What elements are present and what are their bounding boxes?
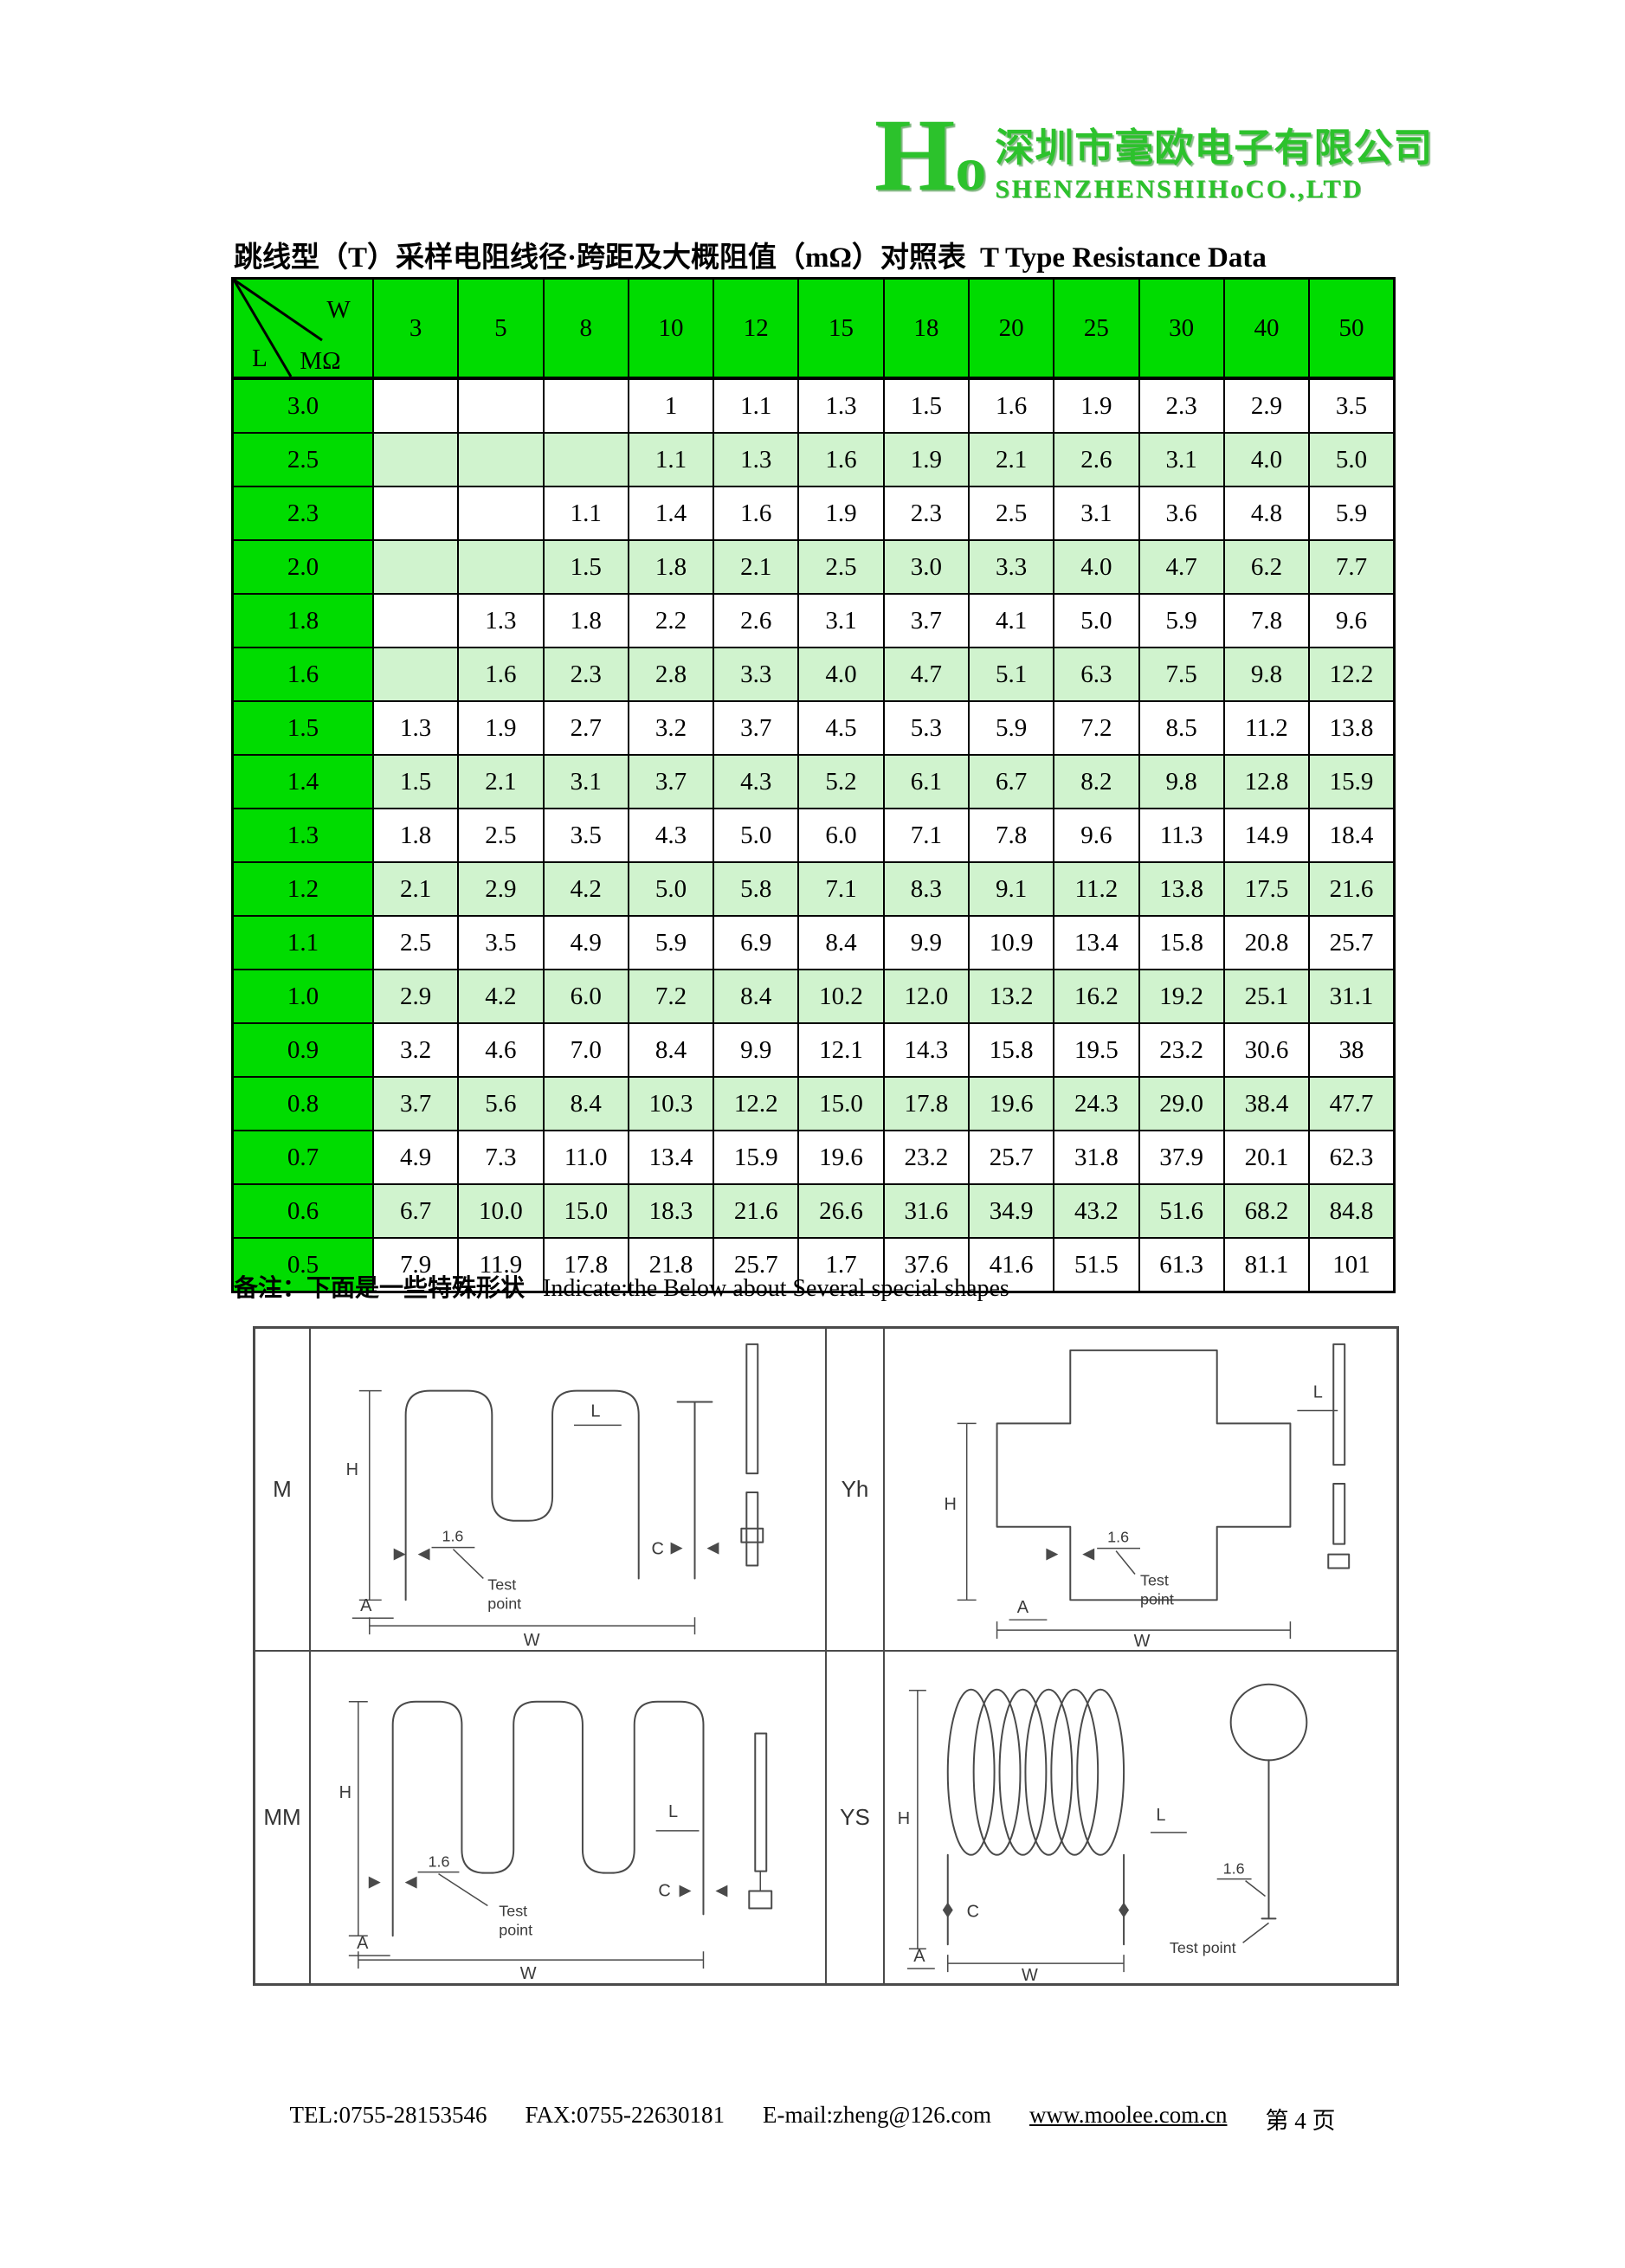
logo-text: 深圳市毫欧电子有限公司 SHENZHENSHIHoCO.,LTD bbox=[995, 116, 1433, 204]
dim-label-l: L bbox=[1156, 1806, 1165, 1825]
cell-1.1-40: 20.8 bbox=[1224, 916, 1309, 970]
footer-website-link[interactable]: www.moolee.com.cn bbox=[1029, 2102, 1227, 2136]
cell-1.6-25: 6.3 bbox=[1054, 648, 1138, 701]
cell-3.0-5 bbox=[458, 378, 543, 433]
cell-1.2-50: 21.6 bbox=[1309, 862, 1394, 916]
row-header-0.8: 0.8 bbox=[233, 1077, 374, 1131]
test-point-label-line1: Test bbox=[499, 1902, 527, 1919]
shape-drawing-m: H L 1.6 Test point A C W bbox=[310, 1328, 826, 1651]
cell-0.6-18: 31.6 bbox=[884, 1184, 969, 1238]
column-header-20: 20 bbox=[969, 279, 1054, 379]
cell-2.3-18: 2.3 bbox=[884, 486, 969, 540]
cell-3.0-12: 1.1 bbox=[713, 378, 798, 433]
cell-0.7-30: 37.9 bbox=[1139, 1131, 1224, 1184]
cell-0.6-15: 26.6 bbox=[798, 1184, 883, 1238]
cell-0.5-40: 81.1 bbox=[1224, 1238, 1309, 1292]
corner-cell: W L MΩ bbox=[233, 279, 374, 379]
cell-2.5-20: 2.1 bbox=[969, 433, 1054, 486]
cell-1.6-5: 1.6 bbox=[458, 648, 543, 701]
cell-1.1-10: 5.9 bbox=[629, 916, 713, 970]
page-title: 跳线型（T）采样电阻线径·跨距及大概阻值（mΩ）对照表T Type Resist… bbox=[234, 234, 1267, 275]
table-row-0.7: 0.74.97.311.013.415.919.623.225.731.837.… bbox=[233, 1131, 1395, 1184]
cell-1.6-10: 2.8 bbox=[629, 648, 713, 701]
table-header-row: W L MΩ 358101215182025304050 bbox=[233, 279, 1395, 379]
table-row-1.6: 1.61.62.32.83.34.04.75.16.37.59.812.2 bbox=[233, 648, 1395, 701]
row-header-0.7: 0.7 bbox=[233, 1131, 374, 1184]
dim-label-a: A bbox=[357, 1934, 369, 1953]
cell-1.6-3 bbox=[373, 648, 458, 701]
cell-2.0-25: 4.0 bbox=[1054, 540, 1138, 594]
cell-2.0-12: 2.1 bbox=[713, 540, 798, 594]
cell-1.1-50: 25.7 bbox=[1309, 916, 1394, 970]
cell-1.1-15: 8.4 bbox=[798, 916, 883, 970]
cell-1.6-50: 12.2 bbox=[1309, 648, 1394, 701]
cell-1.3-30: 11.3 bbox=[1139, 809, 1224, 862]
table-row-1.4: 1.41.52.13.13.74.35.26.16.78.29.812.815.… bbox=[233, 755, 1395, 809]
shape-drawing-yh: L H 1.6 Test point A W bbox=[884, 1328, 1397, 1651]
cell-0.5-50: 101 bbox=[1309, 1238, 1394, 1292]
dim-label-l: L bbox=[1313, 1383, 1323, 1402]
cell-1.2-5: 2.9 bbox=[458, 862, 543, 916]
cell-1.3-18: 7.1 bbox=[884, 809, 969, 862]
note-en: Indicate:the Below about Several special… bbox=[543, 1275, 1009, 1302]
table-row-1.0: 1.02.94.26.07.28.410.212.013.216.219.225… bbox=[233, 970, 1395, 1023]
cell-1.1-25: 13.4 bbox=[1054, 916, 1138, 970]
cell-1.6-30: 7.5 bbox=[1139, 648, 1224, 701]
cell-0.9-10: 8.4 bbox=[629, 1023, 713, 1077]
cell-1.5-12: 3.7 bbox=[713, 701, 798, 755]
dim-label-l: L bbox=[668, 1802, 678, 1821]
cell-1.3-20: 7.8 bbox=[969, 809, 1054, 862]
cell-2.3-10: 1.4 bbox=[629, 486, 713, 540]
cell-2.3-50: 5.9 bbox=[1309, 486, 1394, 540]
cell-1.6-18: 4.7 bbox=[884, 648, 969, 701]
cell-1.4-25: 8.2 bbox=[1054, 755, 1138, 809]
dim-label-h: H bbox=[898, 1809, 910, 1828]
note-line: 备注：下面是一些特殊形状 Indicate:the Below about Se… bbox=[234, 1269, 1009, 1304]
yh-cross-drawing: L H 1.6 Test point A W bbox=[885, 1329, 1396, 1650]
cell-1.2-12: 5.8 bbox=[713, 862, 798, 916]
column-header-10: 10 bbox=[629, 279, 713, 379]
cell-1.4-8: 3.1 bbox=[544, 755, 629, 809]
cell-2.3-40: 4.8 bbox=[1224, 486, 1309, 540]
cell-1.2-15: 7.1 bbox=[798, 862, 883, 916]
dim-label-w: W bbox=[520, 1964, 537, 1983]
cell-0.6-8: 15.0 bbox=[544, 1184, 629, 1238]
row-header-0.6: 0.6 bbox=[233, 1184, 374, 1238]
cell-1.6-20: 5.1 bbox=[969, 648, 1054, 701]
cell-2.0-8: 1.5 bbox=[544, 540, 629, 594]
cell-1.1-8: 4.9 bbox=[544, 916, 629, 970]
column-header-12: 12 bbox=[713, 279, 798, 379]
cell-1.5-30: 8.5 bbox=[1139, 701, 1224, 755]
cell-2.5-30: 3.1 bbox=[1139, 433, 1224, 486]
cell-1.8-40: 7.8 bbox=[1224, 594, 1309, 648]
dim-label-c: C bbox=[658, 1882, 670, 1901]
cell-2.0-50: 7.7 bbox=[1309, 540, 1394, 594]
page-title-cn: 跳线型（T）采样电阻线径·跨距及大概阻值（mΩ）对照表 bbox=[234, 242, 966, 274]
cell-2.3-3 bbox=[373, 486, 458, 540]
table-body: 3.011.11.31.51.61.92.32.93.52.51.11.31.6… bbox=[233, 378, 1395, 1292]
cell-0.6-10: 18.3 bbox=[629, 1184, 713, 1238]
column-header-15: 15 bbox=[798, 279, 883, 379]
cell-1.3-5: 2.5 bbox=[458, 809, 543, 862]
page-footer: TEL:0755-28153546 FAX:0755-22630181 E-ma… bbox=[0, 2102, 1625, 2136]
cell-1.2-20: 9.1 bbox=[969, 862, 1054, 916]
cell-1.0-40: 25.1 bbox=[1224, 970, 1309, 1023]
cell-1.0-8: 6.0 bbox=[544, 970, 629, 1023]
cell-1.3-50: 18.4 bbox=[1309, 809, 1394, 862]
cell-1.4-18: 6.1 bbox=[884, 755, 969, 809]
dim-label-w: W bbox=[1134, 1632, 1151, 1650]
cell-0.8-3: 3.7 bbox=[373, 1077, 458, 1131]
cell-1.4-3: 1.5 bbox=[373, 755, 458, 809]
test-point-label-line2: point bbox=[499, 1921, 532, 1938]
cell-1.4-10: 3.7 bbox=[629, 755, 713, 809]
cell-0.7-15: 19.6 bbox=[798, 1131, 883, 1184]
cell-1.4-40: 12.8 bbox=[1224, 755, 1309, 809]
cell-1.5-5: 1.9 bbox=[458, 701, 543, 755]
cell-0.7-3: 4.9 bbox=[373, 1131, 458, 1184]
table-row-2.3: 2.31.11.41.61.92.32.53.13.64.85.9 bbox=[233, 486, 1395, 540]
table-row-1.1: 1.12.53.54.95.96.98.49.910.913.415.820.8… bbox=[233, 916, 1395, 970]
cell-0.7-18: 23.2 bbox=[884, 1131, 969, 1184]
corner-label-l: L bbox=[252, 345, 268, 372]
cell-1.3-10: 4.3 bbox=[629, 809, 713, 862]
row-header-0.9: 0.9 bbox=[233, 1023, 374, 1077]
cell-2.5-5 bbox=[458, 433, 543, 486]
cell-2.5-40: 4.0 bbox=[1224, 433, 1309, 486]
test-point-label-line1: Test bbox=[487, 1575, 516, 1593]
row-header-1.3: 1.3 bbox=[233, 809, 374, 862]
cell-1.3-12: 5.0 bbox=[713, 809, 798, 862]
special-shapes-panel: M H L 1.6 Test point A C bbox=[253, 1326, 1399, 1986]
cell-1.8-5: 1.3 bbox=[458, 594, 543, 648]
cell-1.1-18: 9.9 bbox=[884, 916, 969, 970]
cell-2.3-25: 3.1 bbox=[1054, 486, 1138, 540]
cell-0.9-18: 14.3 bbox=[884, 1023, 969, 1077]
shape-type-label-ys: YS bbox=[826, 1651, 884, 1984]
column-header-3: 3 bbox=[373, 279, 458, 379]
cell-1.0-15: 10.2 bbox=[798, 970, 883, 1023]
cell-0.7-40: 20.1 bbox=[1224, 1131, 1309, 1184]
resistance-table: W L MΩ 358101215182025304050 3.011.11.31… bbox=[231, 277, 1396, 1293]
cell-0.5-25: 51.5 bbox=[1054, 1238, 1138, 1292]
cell-1.2-25: 11.2 bbox=[1054, 862, 1138, 916]
row-header-1.5: 1.5 bbox=[233, 701, 374, 755]
cell-1.0-18: 12.0 bbox=[884, 970, 969, 1023]
cell-0.6-20: 34.9 bbox=[969, 1184, 1054, 1238]
cell-0.7-20: 25.7 bbox=[969, 1131, 1054, 1184]
cell-1.5-15: 4.5 bbox=[798, 701, 883, 755]
cell-1.3-8: 3.5 bbox=[544, 809, 629, 862]
row-header-2.0: 2.0 bbox=[233, 540, 374, 594]
footer-email: E-mail:zheng@126.com bbox=[763, 2102, 991, 2136]
cell-0.9-50: 38 bbox=[1309, 1023, 1394, 1077]
cell-0.6-3: 6.7 bbox=[373, 1184, 458, 1238]
cell-2.3-30: 3.6 bbox=[1139, 486, 1224, 540]
cell-2.5-10: 1.1 bbox=[629, 433, 713, 486]
dim-label-w: W bbox=[1022, 1966, 1038, 1983]
shape-drawing-ys: C H L 1.6 Test point A W bbox=[884, 1651, 1397, 1984]
cell-2.5-25: 2.6 bbox=[1054, 433, 1138, 486]
cell-1.2-18: 8.3 bbox=[884, 862, 969, 916]
cell-1.6-15: 4.0 bbox=[798, 648, 883, 701]
test-point-label: Test point bbox=[1170, 1939, 1236, 1956]
cell-0.7-8: 11.0 bbox=[544, 1131, 629, 1184]
cell-1.5-40: 11.2 bbox=[1224, 701, 1309, 755]
cell-1.6-12: 3.3 bbox=[713, 648, 798, 701]
cell-1.6-8: 2.3 bbox=[544, 648, 629, 701]
cell-1.8-10: 2.2 bbox=[629, 594, 713, 648]
cell-1.8-18: 3.7 bbox=[884, 594, 969, 648]
cell-1.5-50: 13.8 bbox=[1309, 701, 1394, 755]
wire-diameter-label: 1.6 bbox=[429, 1853, 450, 1871]
cell-1.2-3: 2.1 bbox=[373, 862, 458, 916]
footer-page-number: 第 4 页 bbox=[1265, 2102, 1335, 2136]
cell-1.8-12: 2.6 bbox=[713, 594, 798, 648]
cell-1.1-30: 15.8 bbox=[1139, 916, 1224, 970]
wire-diameter-label: 1.6 bbox=[442, 1528, 463, 1545]
dim-label-a: A bbox=[1017, 1598, 1029, 1617]
cell-2.3-12: 1.6 bbox=[713, 486, 798, 540]
cell-0.7-12: 15.9 bbox=[713, 1131, 798, 1184]
cell-1.8-15: 3.1 bbox=[798, 594, 883, 648]
row-header-1.8: 1.8 bbox=[233, 594, 374, 648]
cell-0.8-50: 47.7 bbox=[1309, 1077, 1394, 1131]
cell-0.9-8: 7.0 bbox=[544, 1023, 629, 1077]
m-meander-drawing: H L 1.6 Test point A C W bbox=[311, 1329, 825, 1650]
cell-1.5-25: 7.2 bbox=[1054, 701, 1138, 755]
cell-2.0-18: 3.0 bbox=[884, 540, 969, 594]
shape-type-label-mm: MM bbox=[255, 1651, 310, 1984]
row-header-1.0: 1.0 bbox=[233, 970, 374, 1023]
cell-1.0-25: 16.2 bbox=[1054, 970, 1138, 1023]
table-row-1.5: 1.51.31.92.73.23.74.55.35.97.28.511.213.… bbox=[233, 701, 1395, 755]
cell-1.4-30: 9.8 bbox=[1139, 755, 1224, 809]
cell-1.8-8: 1.8 bbox=[544, 594, 629, 648]
cell-1.4-15: 5.2 bbox=[798, 755, 883, 809]
cell-1.3-25: 9.6 bbox=[1054, 809, 1138, 862]
company-name-en: SHENZHENSHIHoCO.,LTD bbox=[995, 175, 1433, 204]
test-point-label-line2: point bbox=[1140, 1590, 1174, 1608]
cell-0.8-40: 38.4 bbox=[1224, 1077, 1309, 1131]
shape-type-label-yh: Yh bbox=[826, 1328, 884, 1651]
dim-label-l: L bbox=[590, 1401, 600, 1421]
table-row-0.8: 0.83.75.68.410.312.215.017.819.624.329.0… bbox=[233, 1077, 1395, 1131]
cell-1.1-3: 2.5 bbox=[373, 916, 458, 970]
cell-0.7-5: 7.3 bbox=[458, 1131, 543, 1184]
cell-3.0-25: 1.9 bbox=[1054, 378, 1138, 433]
column-header-25: 25 bbox=[1054, 279, 1138, 379]
table-row-1.2: 1.22.12.94.25.05.87.18.39.111.213.817.52… bbox=[233, 862, 1395, 916]
dim-label-w: W bbox=[524, 1631, 540, 1650]
cell-1.2-10: 5.0 bbox=[629, 862, 713, 916]
shape-drawing-mm: H 1.6 Test point A L C W bbox=[310, 1651, 826, 1984]
table-row-2.0: 2.01.51.82.12.53.03.34.04.76.27.7 bbox=[233, 540, 1395, 594]
table-row-0.9: 0.93.24.67.08.49.912.114.315.819.523.230… bbox=[233, 1023, 1395, 1077]
wire-diameter-label: 1.6 bbox=[1107, 1529, 1129, 1546]
cell-3.0-10: 1 bbox=[629, 378, 713, 433]
cell-0.7-10: 13.4 bbox=[629, 1131, 713, 1184]
cell-0.8-25: 24.3 bbox=[1054, 1077, 1138, 1131]
row-header-1.4: 1.4 bbox=[233, 755, 374, 809]
cell-1.8-20: 4.1 bbox=[969, 594, 1054, 648]
cell-1.0-20: 13.2 bbox=[969, 970, 1054, 1023]
datasheet-page: Ho 深圳市毫欧电子有限公司 SHENZHENSHIHoCO.,LTD 跳线型（… bbox=[0, 0, 1625, 2268]
table-row-0.6: 0.66.710.015.018.321.626.631.634.943.251… bbox=[233, 1184, 1395, 1238]
cell-0.9-12: 9.9 bbox=[713, 1023, 798, 1077]
cell-1.4-20: 6.7 bbox=[969, 755, 1054, 809]
cell-2.0-10: 1.8 bbox=[629, 540, 713, 594]
test-point-label-line2: point bbox=[487, 1595, 521, 1612]
column-header-40: 40 bbox=[1224, 279, 1309, 379]
company-logo: Ho 深圳市毫欧电子有限公司 SHENZHENSHIHoCO.,LTD bbox=[874, 106, 1433, 204]
cell-2.0-30: 4.7 bbox=[1139, 540, 1224, 594]
cell-3.0-18: 1.5 bbox=[884, 378, 969, 433]
cell-1.0-30: 19.2 bbox=[1139, 970, 1224, 1023]
column-header-50: 50 bbox=[1309, 279, 1394, 379]
cell-2.5-15: 1.6 bbox=[798, 433, 883, 486]
cell-1.2-30: 13.8 bbox=[1139, 862, 1224, 916]
cell-1.8-30: 5.9 bbox=[1139, 594, 1224, 648]
cell-1.2-40: 17.5 bbox=[1224, 862, 1309, 916]
cell-0.9-25: 19.5 bbox=[1054, 1023, 1138, 1077]
cell-2.5-3 bbox=[373, 433, 458, 486]
cell-1.1-20: 10.9 bbox=[969, 916, 1054, 970]
cell-1.3-3: 1.8 bbox=[373, 809, 458, 862]
cell-3.0-20: 1.6 bbox=[969, 378, 1054, 433]
mm-meander-drawing: H 1.6 Test point A L C W bbox=[311, 1652, 825, 1983]
cell-0.9-3: 3.2 bbox=[373, 1023, 458, 1077]
cell-2.3-5 bbox=[458, 486, 543, 540]
cell-1.2-8: 4.2 bbox=[544, 862, 629, 916]
cell-1.4-50: 15.9 bbox=[1309, 755, 1394, 809]
cell-0.8-5: 5.6 bbox=[458, 1077, 543, 1131]
cell-2.5-50: 5.0 bbox=[1309, 433, 1394, 486]
corner-label-w: W bbox=[326, 296, 351, 324]
cell-1.0-50: 31.1 bbox=[1309, 970, 1394, 1023]
cell-3.0-8 bbox=[544, 378, 629, 433]
cell-0.7-50: 62.3 bbox=[1309, 1131, 1394, 1184]
table-row-1.3: 1.31.82.53.54.35.06.07.17.89.611.314.918… bbox=[233, 809, 1395, 862]
cell-1.0-10: 7.2 bbox=[629, 970, 713, 1023]
cell-1.5-3: 1.3 bbox=[373, 701, 458, 755]
cell-0.5-30: 61.3 bbox=[1139, 1238, 1224, 1292]
cell-2.5-8 bbox=[544, 433, 629, 486]
dim-label-h: H bbox=[945, 1495, 957, 1514]
cell-3.0-40: 2.9 bbox=[1224, 378, 1309, 433]
cell-1.8-50: 9.6 bbox=[1309, 594, 1394, 648]
cell-2.0-20: 3.3 bbox=[969, 540, 1054, 594]
cell-2.0-40: 6.2 bbox=[1224, 540, 1309, 594]
cell-1.8-3 bbox=[373, 594, 458, 648]
dim-label-a: A bbox=[913, 1947, 925, 1966]
cell-1.5-18: 5.3 bbox=[884, 701, 969, 755]
row-header-1.1: 1.1 bbox=[233, 916, 374, 970]
dim-label-c: C bbox=[967, 1902, 979, 1921]
dim-label-c: C bbox=[651, 1540, 663, 1559]
table-row-2.5: 2.51.11.31.61.92.12.63.14.05.0 bbox=[233, 433, 1395, 486]
cell-0.9-20: 15.8 bbox=[969, 1023, 1054, 1077]
note-cn: 备注：下面是一些特殊形状 bbox=[234, 1275, 525, 1302]
dim-label-h: H bbox=[346, 1460, 358, 1479]
cell-2.3-15: 1.9 bbox=[798, 486, 883, 540]
column-header-5: 5 bbox=[458, 279, 543, 379]
dim-label-h: H bbox=[339, 1783, 351, 1802]
cell-0.8-8: 8.4 bbox=[544, 1077, 629, 1131]
cell-2.3-8: 1.1 bbox=[544, 486, 629, 540]
cell-3.0-15: 1.3 bbox=[798, 378, 883, 433]
cell-1.0-3: 2.9 bbox=[373, 970, 458, 1023]
table-row-1.8: 1.81.31.82.22.63.13.74.15.05.97.89.6 bbox=[233, 594, 1395, 648]
logo-mark: Ho bbox=[874, 106, 986, 204]
cell-0.8-12: 12.2 bbox=[713, 1077, 798, 1131]
cell-0.9-15: 12.1 bbox=[798, 1023, 883, 1077]
cell-1.4-12: 4.3 bbox=[713, 755, 798, 809]
shape-type-label-m: M bbox=[255, 1328, 310, 1651]
row-header-1.6: 1.6 bbox=[233, 648, 374, 701]
row-header-2.5: 2.5 bbox=[233, 433, 374, 486]
footer-tel: TEL:0755-28153546 bbox=[290, 2102, 487, 2136]
cell-0.8-20: 19.6 bbox=[969, 1077, 1054, 1131]
cell-1.6-40: 9.8 bbox=[1224, 648, 1309, 701]
cell-0.6-30: 51.6 bbox=[1139, 1184, 1224, 1238]
cell-3.0-30: 2.3 bbox=[1139, 378, 1224, 433]
cell-0.9-40: 30.6 bbox=[1224, 1023, 1309, 1077]
column-header-30: 30 bbox=[1139, 279, 1224, 379]
cell-3.0-50: 3.5 bbox=[1309, 378, 1394, 433]
row-header-2.3: 2.3 bbox=[233, 486, 374, 540]
cell-2.5-12: 1.3 bbox=[713, 433, 798, 486]
cell-2.5-18: 1.9 bbox=[884, 433, 969, 486]
cell-1.0-12: 8.4 bbox=[713, 970, 798, 1023]
cell-0.9-5: 4.6 bbox=[458, 1023, 543, 1077]
cell-1.4-5: 2.1 bbox=[458, 755, 543, 809]
cell-0.8-15: 15.0 bbox=[798, 1077, 883, 1131]
table-row-3.0: 3.011.11.31.51.61.92.32.93.5 bbox=[233, 378, 1395, 433]
corner-label-mohm: MΩ bbox=[300, 347, 340, 375]
test-point-label-line1: Test bbox=[1140, 1571, 1169, 1588]
cell-0.6-5: 10.0 bbox=[458, 1184, 543, 1238]
cell-1.5-20: 5.9 bbox=[969, 701, 1054, 755]
wire-diameter-label: 1.6 bbox=[1223, 1860, 1245, 1878]
cell-1.3-15: 6.0 bbox=[798, 809, 883, 862]
footer-fax: FAX:0755-22630181 bbox=[525, 2102, 725, 2136]
cell-0.6-12: 21.6 bbox=[713, 1184, 798, 1238]
cell-2.0-5 bbox=[458, 540, 543, 594]
cell-2.0-3 bbox=[373, 540, 458, 594]
cell-0.8-10: 10.3 bbox=[629, 1077, 713, 1131]
corner-diagonal-drawing: W L MΩ bbox=[234, 280, 372, 377]
cell-1.8-25: 5.0 bbox=[1054, 594, 1138, 648]
cell-0.6-25: 43.2 bbox=[1054, 1184, 1138, 1238]
cell-1.5-10: 3.2 bbox=[629, 701, 713, 755]
cell-0.8-30: 29.0 bbox=[1139, 1077, 1224, 1131]
dim-label-a: A bbox=[360, 1596, 372, 1615]
cell-3.0-3 bbox=[373, 378, 458, 433]
row-header-3.0: 3.0 bbox=[233, 378, 374, 433]
cell-2.0-15: 2.5 bbox=[798, 540, 883, 594]
company-name-cn: 深圳市毫欧电子有限公司 bbox=[995, 116, 1433, 172]
column-header-18: 18 bbox=[884, 279, 969, 379]
ys-coil-drawing: C H L 1.6 Test point A W bbox=[885, 1652, 1396, 1983]
cell-1.5-8: 2.7 bbox=[544, 701, 629, 755]
cell-1.1-5: 3.5 bbox=[458, 916, 543, 970]
cell-2.3-20: 2.5 bbox=[969, 486, 1054, 540]
page-title-en: T Type Resistance Data bbox=[980, 242, 1267, 274]
row-header-1.2: 1.2 bbox=[233, 862, 374, 916]
